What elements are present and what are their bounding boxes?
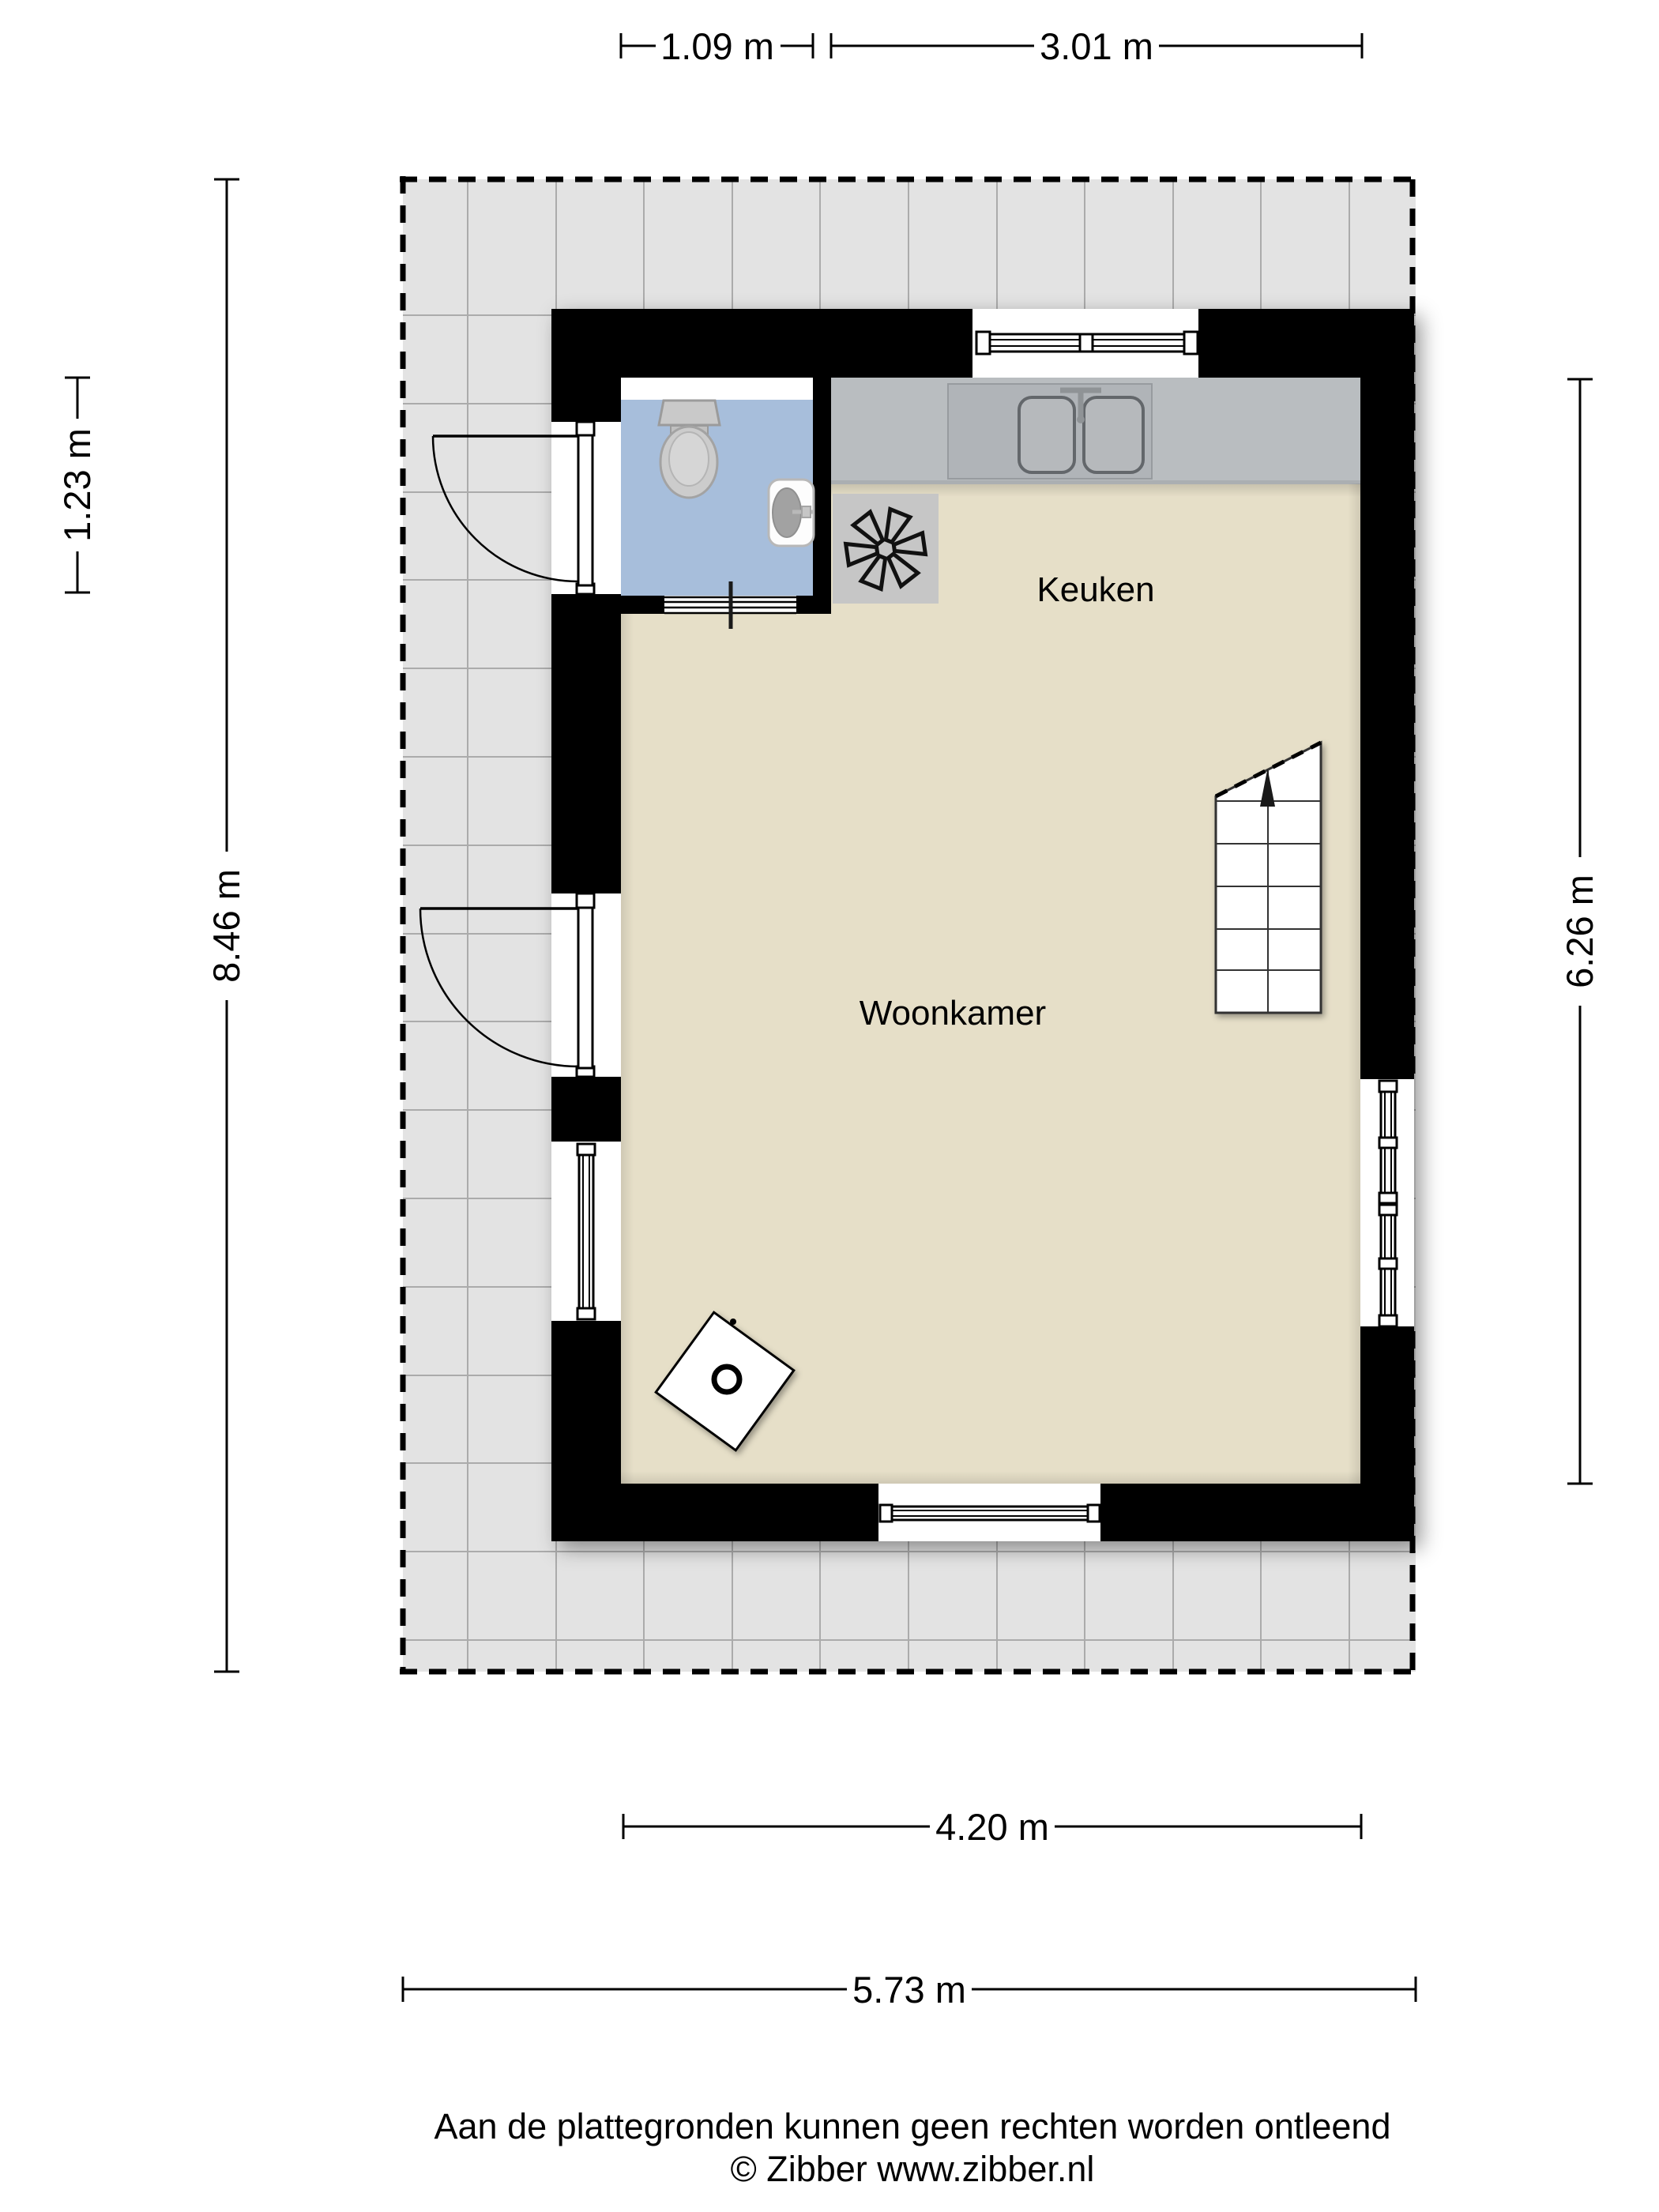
svg-text:1.09 m: 1.09 m xyxy=(660,25,774,67)
svg-text:© Zibber www.zibber.nl: © Zibber www.zibber.nl xyxy=(731,2149,1095,2189)
svg-text:8.46 m: 8.46 m xyxy=(205,869,247,983)
svg-text:6.26 m: 6.26 m xyxy=(1559,875,1601,988)
svg-text:5.73 m: 5.73 m xyxy=(852,1969,966,2011)
svg-text:4.20 m: 4.20 m xyxy=(935,1806,1049,1848)
svg-text:Aan de plattegronden kunnen ge: Aan de plattegronden kunnen geen rechten… xyxy=(434,2106,1391,2146)
svg-text:Woonkamer: Woonkamer xyxy=(860,994,1046,1033)
svg-text:3.01 m: 3.01 m xyxy=(1040,25,1153,67)
svg-text:Keuken: Keuken xyxy=(1036,570,1154,609)
svg-text:1.23 m: 1.23 m xyxy=(56,428,98,542)
